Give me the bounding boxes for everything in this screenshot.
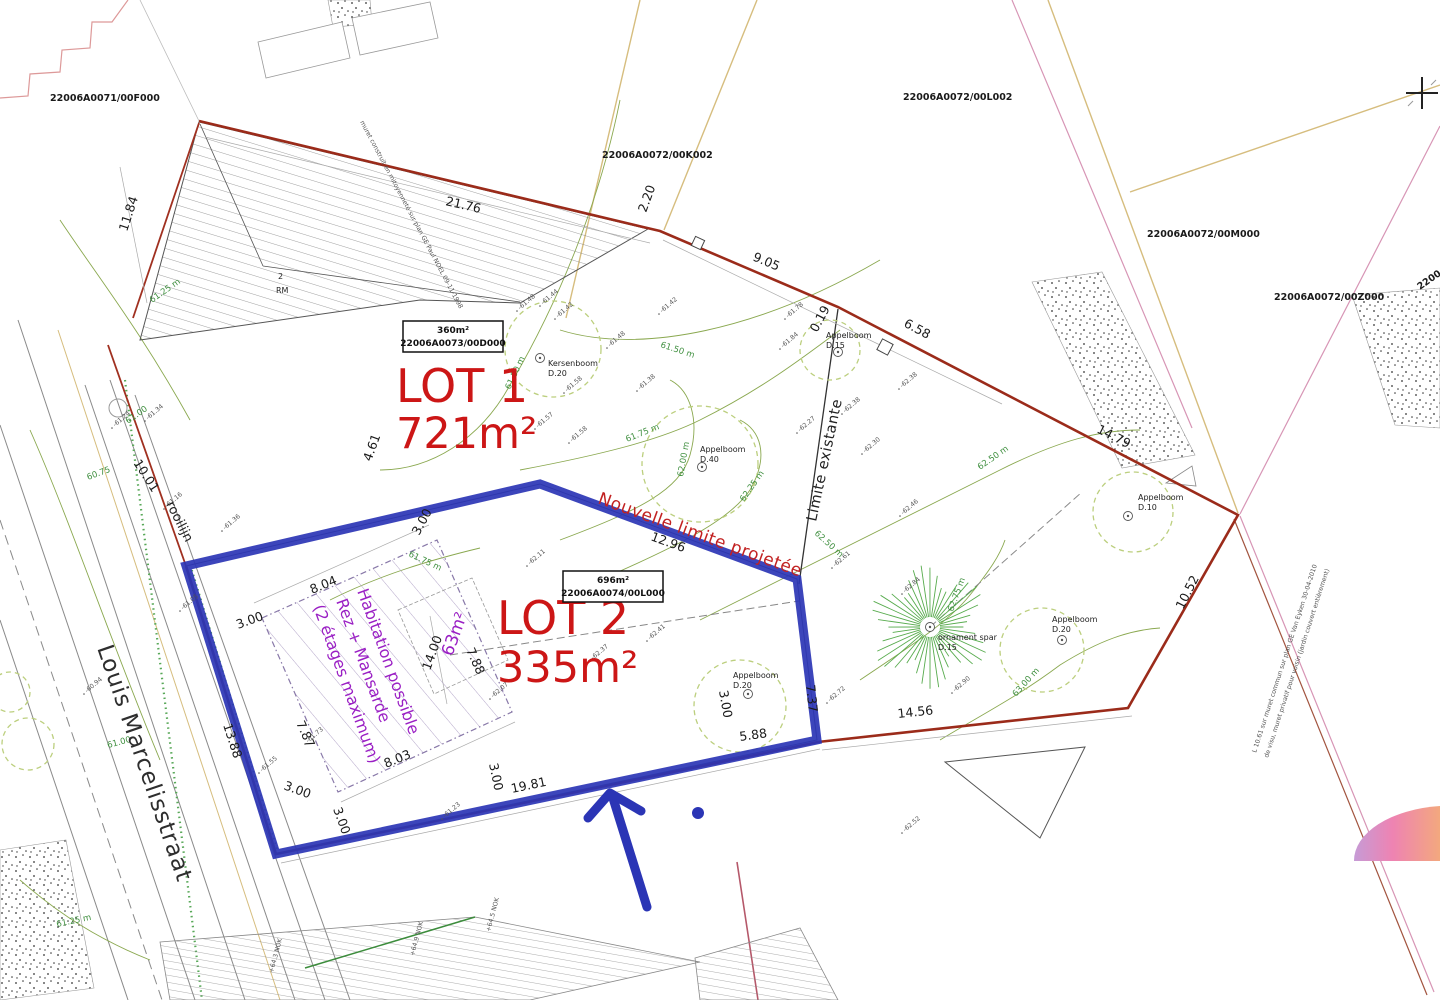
bottom-roof-a [160,917,700,1000]
measurement-label: 3.00 [330,805,354,836]
contour-elevation-label: 62.00 m [676,441,692,478]
spot-elevation-dot [831,567,833,569]
appelboom-d15-label: Appelboom [826,331,872,340]
parcel-box-2-number: 22006A0074/00L000 [561,589,665,599]
measurement-label: 19.81 [510,774,548,796]
spot-elevation-dot [951,692,953,694]
bottom-roof-b [695,928,838,1000]
spot-elevation-dot [779,348,781,350]
appelboom-d20-mid-label: Appelboom [733,671,779,680]
measurement-label: 3.00 [282,778,313,802]
spar-branch [878,632,922,660]
spot-elevation-label: -62.38 [899,371,919,389]
triangle-marker-large [945,747,1085,838]
spot-elevation-dot [658,313,660,315]
appelboom-d20-right-size: D.20 [1052,625,1071,634]
appelboom-d20-mid-trunk-center [747,693,749,695]
appelboom-d40-trunk-center [701,466,703,468]
appelboom-d20-right-trunk-center [1061,639,1063,641]
spot-elevation-label: -61.36 [222,513,242,531]
parcel-number-label: 22006A0072/00L002 [903,92,1012,103]
spot-elevation-label: -61.44 [540,288,560,306]
spot-elevation-dot [144,420,146,422]
spot-elevation-dot [516,310,518,312]
wall-annotation-right-1: L 10.61 sur muret commun sur plan GE Van… [1251,564,1319,754]
measurement-label: 3.00 [486,762,506,792]
spot-elevation-label: -62.27 [797,415,817,433]
contour-elevation-label: 62.75 m [946,576,967,613]
spar-branch [940,622,967,626]
rooilijn-label: rooilijn [162,499,195,545]
rooilijn-red-line [108,345,186,566]
spot-elevation-label: -61.57 [535,411,555,429]
ornament-spar-d15-trunk-center [929,626,931,628]
spot-elevation-label: -61.84 [780,331,800,349]
spot-elevation-label: -62.41 [647,623,667,641]
appelboom-d20-mid-size: D.20 [733,681,752,690]
building-label-2: 2 [278,272,283,281]
spot-elevation-dot [563,392,565,394]
kersenboom-d20-trunk-center [539,357,541,359]
spot-elevation-dot [539,305,541,307]
spar-branch [940,615,971,624]
survey-stone-marker [691,236,704,249]
spot-elevation-dot [898,388,900,390]
spot-elevation-dot [899,515,901,517]
lot-1-name: LOT 1 [396,359,528,413]
triangle-marker-small [1166,466,1196,486]
measurement-label: 4.61 [360,432,384,463]
spot-elevation-label: -61.38 [637,373,657,391]
parcel-box-2-area: 696m² [597,576,629,586]
appelboom-d40-size: D.40 [700,455,719,464]
spot-elevation-label: -62.90 [952,675,972,693]
spot-elevation-dot [258,772,260,774]
measurement-label: 10.01 [130,456,162,494]
measurement-label: 10.52 [1172,573,1202,612]
ornament-spar-d15-label: ornament spar [938,633,998,642]
parcel-number-label: 22006A0072/00Z000 [1274,292,1385,303]
measurement-label: 3.00 [234,608,265,632]
parcel-number-label: 22006A0072/00K002 [602,150,713,161]
spot-elevation-dot [441,818,443,820]
appelboom-d10-trunk-center [1127,515,1129,517]
appelboom-d10-size: D.10 [1138,503,1157,512]
spot-elevation-dot [568,442,570,444]
spot-elevation-dot [901,832,903,834]
spot-elevation-label: -62.84 [902,576,922,594]
spot-elevation-label: -61.58 [569,425,589,443]
spot-elevation-label: -62.11 [527,548,547,566]
measurement-label: 9.05 [751,249,782,274]
new-limit-label: Nouvelle limite projetée [595,489,804,582]
spot-elevation-dot [179,610,181,612]
spot-elevation-dot [796,432,798,434]
parcel-box-1-area: 360m² [437,326,469,336]
parcel-number-label: 22006A0071/00F000 [50,93,160,104]
kersenboom-d20-label: Kersenboom [548,359,598,368]
measurement-label: 0.19 [806,303,832,335]
spot-elevation-label: -61.42 [555,301,575,319]
cadastral-plan: 22006A0071/00F00022006A0072/00K00222006A… [0,0,1440,1000]
spot-elevation-dot [526,565,528,567]
measurement-label: 5.88 [738,725,768,744]
kersenboom-d20-size: D.20 [548,369,567,378]
appelboom-d20-right-label: Appelboom [1052,615,1098,624]
contour-elevation-label: 62.50 m [976,444,1011,472]
spot-elevation-dot [901,593,903,595]
building-label-rm: RM [276,286,289,295]
appelboom-d15-trunk-center [837,351,839,353]
spar-branch [933,588,942,617]
spar-branch [893,628,920,632]
spot-elevation-dot [784,318,786,320]
spot-elevation-dot [861,453,863,455]
blue-dot [692,807,704,819]
spot-elevation-dot [826,702,828,704]
measurement-label: 11.84 [116,194,141,233]
contour-elevation-label: 61.50 m [659,340,696,360]
measurement-label: 13.88 [220,721,245,760]
appelboom-d15-size: D.15 [826,341,845,350]
measurement-label: 2.20 [635,183,659,214]
spot-elevation-dot [221,530,223,532]
survey-stone-marker [877,339,893,355]
ornament-spar-d15-size: D.15 [938,643,957,652]
spot-elevation-label: -62.72 [827,685,847,703]
gradient-dome [1354,806,1440,861]
measurement-label: 6.58 [902,315,934,341]
spot-elevation-dot [111,427,113,429]
spot-elevation-label: -61.42 [659,296,679,314]
measurement-label: 14.56 [897,702,934,721]
lot-1-area: 721m² [396,409,537,459]
spot-elevation-label: -60.94 [84,676,104,694]
appelboom-d10-crown [1093,472,1173,552]
spar-branch [881,595,922,621]
measurement-label: 3.00 [716,689,736,719]
appelboom-d40-label: Appelboom [700,445,746,454]
spot-elevation-label: -62.30 [862,436,882,454]
spot-elevation-dot [554,318,556,320]
spot-elevation-label: -62.52 [902,815,922,833]
parcel-box-1-number: 22006A0073/00D000 [400,339,505,349]
measurement-label: 7.37 [803,684,821,713]
spot-elevation-dot [304,743,306,745]
survey-cross [1406,77,1438,109]
spot-elevation-label: -62.46 [900,498,920,516]
spot-elevation-dot [646,640,648,642]
spot-elevation-dot [636,390,638,392]
parcel-number-label: 22006A0072/00M000 [1147,229,1260,240]
lot-2-area: 335m² [497,643,638,693]
appelboom-d10-label: Appelboom [1138,493,1184,502]
spot-elevation-dot [83,693,85,695]
spot-elevation-dot [489,698,491,700]
spot-elevation-dot [606,347,608,349]
contour-elevation-label: 62.25 m [738,469,766,504]
